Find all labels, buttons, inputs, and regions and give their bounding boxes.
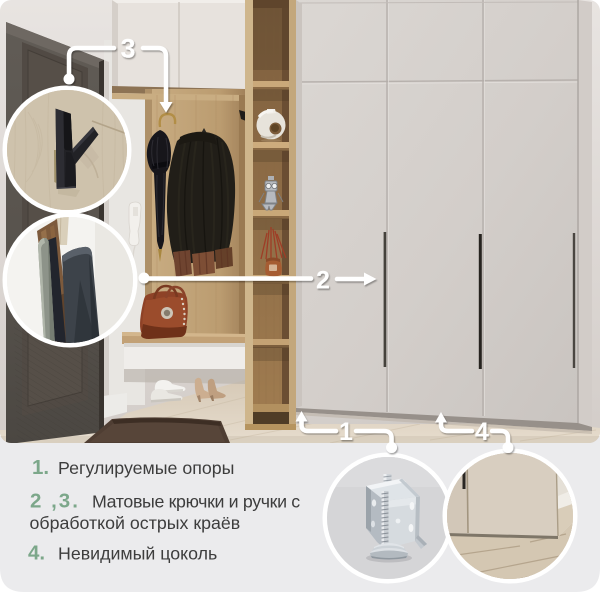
svg-text:2 ,3.: 2 ,3. [30, 490, 80, 513]
svg-text:3: 3 [120, 34, 135, 64]
svg-text:4.: 4. [28, 542, 45, 565]
svg-text:1: 1 [339, 418, 353, 446]
svg-text:обработкой острых краёв: обработкой острых краёв [30, 513, 241, 533]
svg-text:2: 2 [316, 267, 330, 295]
svg-text:Регулируемые опоры: Регулируемые опоры [58, 458, 234, 478]
svg-text:Невидимый цоколь: Невидимый цоколь [58, 544, 217, 564]
svg-text:4: 4 [475, 418, 489, 446]
svg-text:Матовые крючки и ручки с: Матовые крючки и ручки с [92, 492, 300, 512]
svg-text:1.: 1. [32, 456, 49, 479]
